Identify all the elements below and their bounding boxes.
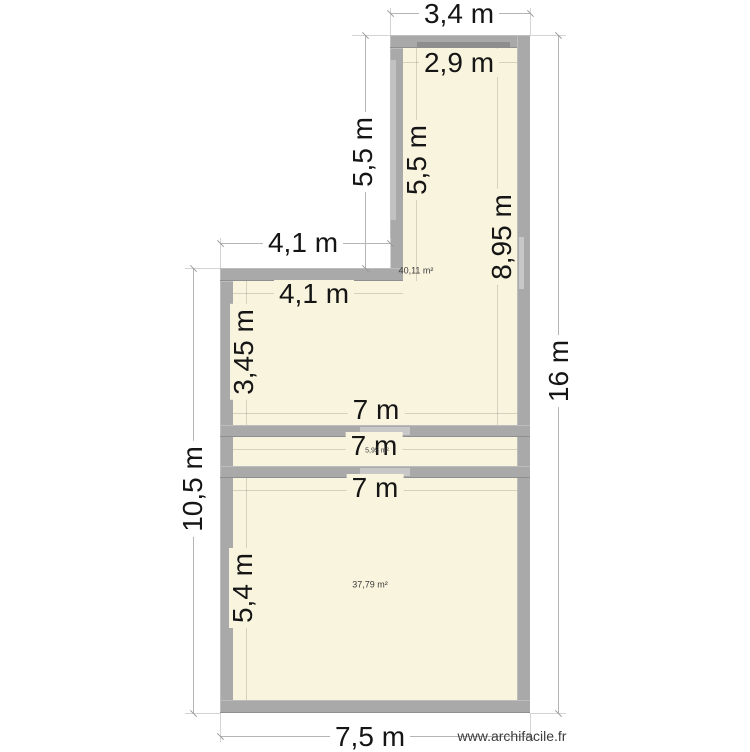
- dimension-label-right-height[interactable]: 16 m: [545, 335, 573, 407]
- dimension-label-right-inner-height[interactable]: 8,95 m: [488, 189, 516, 285]
- dimension-label-strip-width[interactable]: 7 m: [346, 432, 403, 460]
- witness-line: [530, 35, 566, 36]
- dimension-label-left-height[interactable]: 10,5 m: [179, 441, 207, 537]
- room-area-label-upper: 40,11 m²: [399, 267, 434, 276]
- wall-bottom[interactable]: [220, 700, 530, 713]
- dimension-label-top-width[interactable]: 3,4 m: [419, 0, 499, 28]
- dimension-label-upper-left-inner-height[interactable]: 3,45 m: [230, 304, 258, 400]
- wall-right[interactable]: [517, 35, 530, 713]
- witness-line: [352, 35, 390, 36]
- window-narrow-left-wall[interactable]: [390, 60, 396, 220]
- witness-line: [530, 713, 566, 714]
- archifacile-watermark-link[interactable]: www.archifacile.fr: [458, 728, 567, 744]
- window-right-wall[interactable]: [519, 237, 524, 289]
- witness-line: [185, 268, 220, 269]
- witness-line: [185, 713, 220, 714]
- dimension-label-step-inner-width[interactable]: 4,1 m: [274, 280, 354, 308]
- dimension-label-upper-room-width[interactable]: 7 m: [348, 396, 405, 424]
- floor-plan-canvas: 3,4 m 5,5 m 4,1 m 16 m 10,5 m 7,5 m 2,9 …: [0, 0, 750, 750]
- dimension-label-narrow-left-height[interactable]: 5,5 m: [349, 112, 377, 192]
- room-area-label-strip: 5,95 m²: [365, 448, 389, 455]
- dimension-label-top-inner-width[interactable]: 2,9 m: [419, 49, 499, 77]
- room-area-label-lower: 37,79 m²: [352, 581, 388, 590]
- dimension-label-step-width[interactable]: 4,1 m: [263, 229, 343, 257]
- dimension-label-narrow-inner-height[interactable]: 5,5 m: [403, 120, 431, 200]
- dimension-label-lower-room-width[interactable]: 7 m: [347, 474, 404, 502]
- dimension-label-bottom-width[interactable]: 7,5 m: [330, 723, 410, 751]
- dimension-label-lower-left-inner-height[interactable]: 5,4 m: [229, 548, 257, 628]
